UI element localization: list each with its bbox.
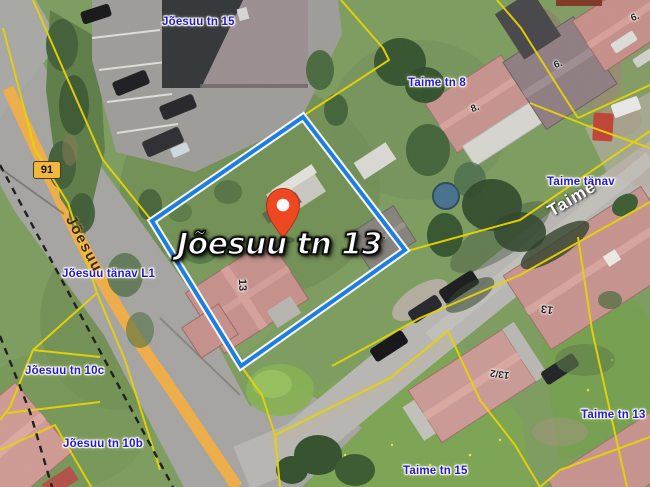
parcel-label-taime-tn-15: Taime tn 15: [403, 465, 468, 477]
aerial-cadastral-map[interactable]: Jõesuu tn 15 Taime tn 8 Taime tänav Jões…: [0, 0, 650, 487]
selected-parcel-title: Jõesuu tn 13: [177, 227, 382, 262]
parcel-label-joesuu-tn-15: Jõesuu tn 15: [162, 16, 235, 28]
highway-number-badge: 91: [33, 161, 61, 179]
parcel-label-joesuu-tn-10c: Jõesuu tn 10c: [25, 365, 104, 377]
roof-number-13-big: 13: [540, 302, 554, 316]
parcel-label-taime-tn-13: Taime tn 13: [581, 409, 646, 421]
parcel-label-joesuu-tn-10b: Jõesuu tn 10b: [63, 438, 143, 450]
parcel-label-taime-tn-8: Taime tn 8: [408, 77, 466, 89]
street-label-joesuu-tanav-l1: Jõesuu tänav L1: [62, 268, 155, 280]
roof-number-13-selected: 13: [236, 279, 248, 292]
